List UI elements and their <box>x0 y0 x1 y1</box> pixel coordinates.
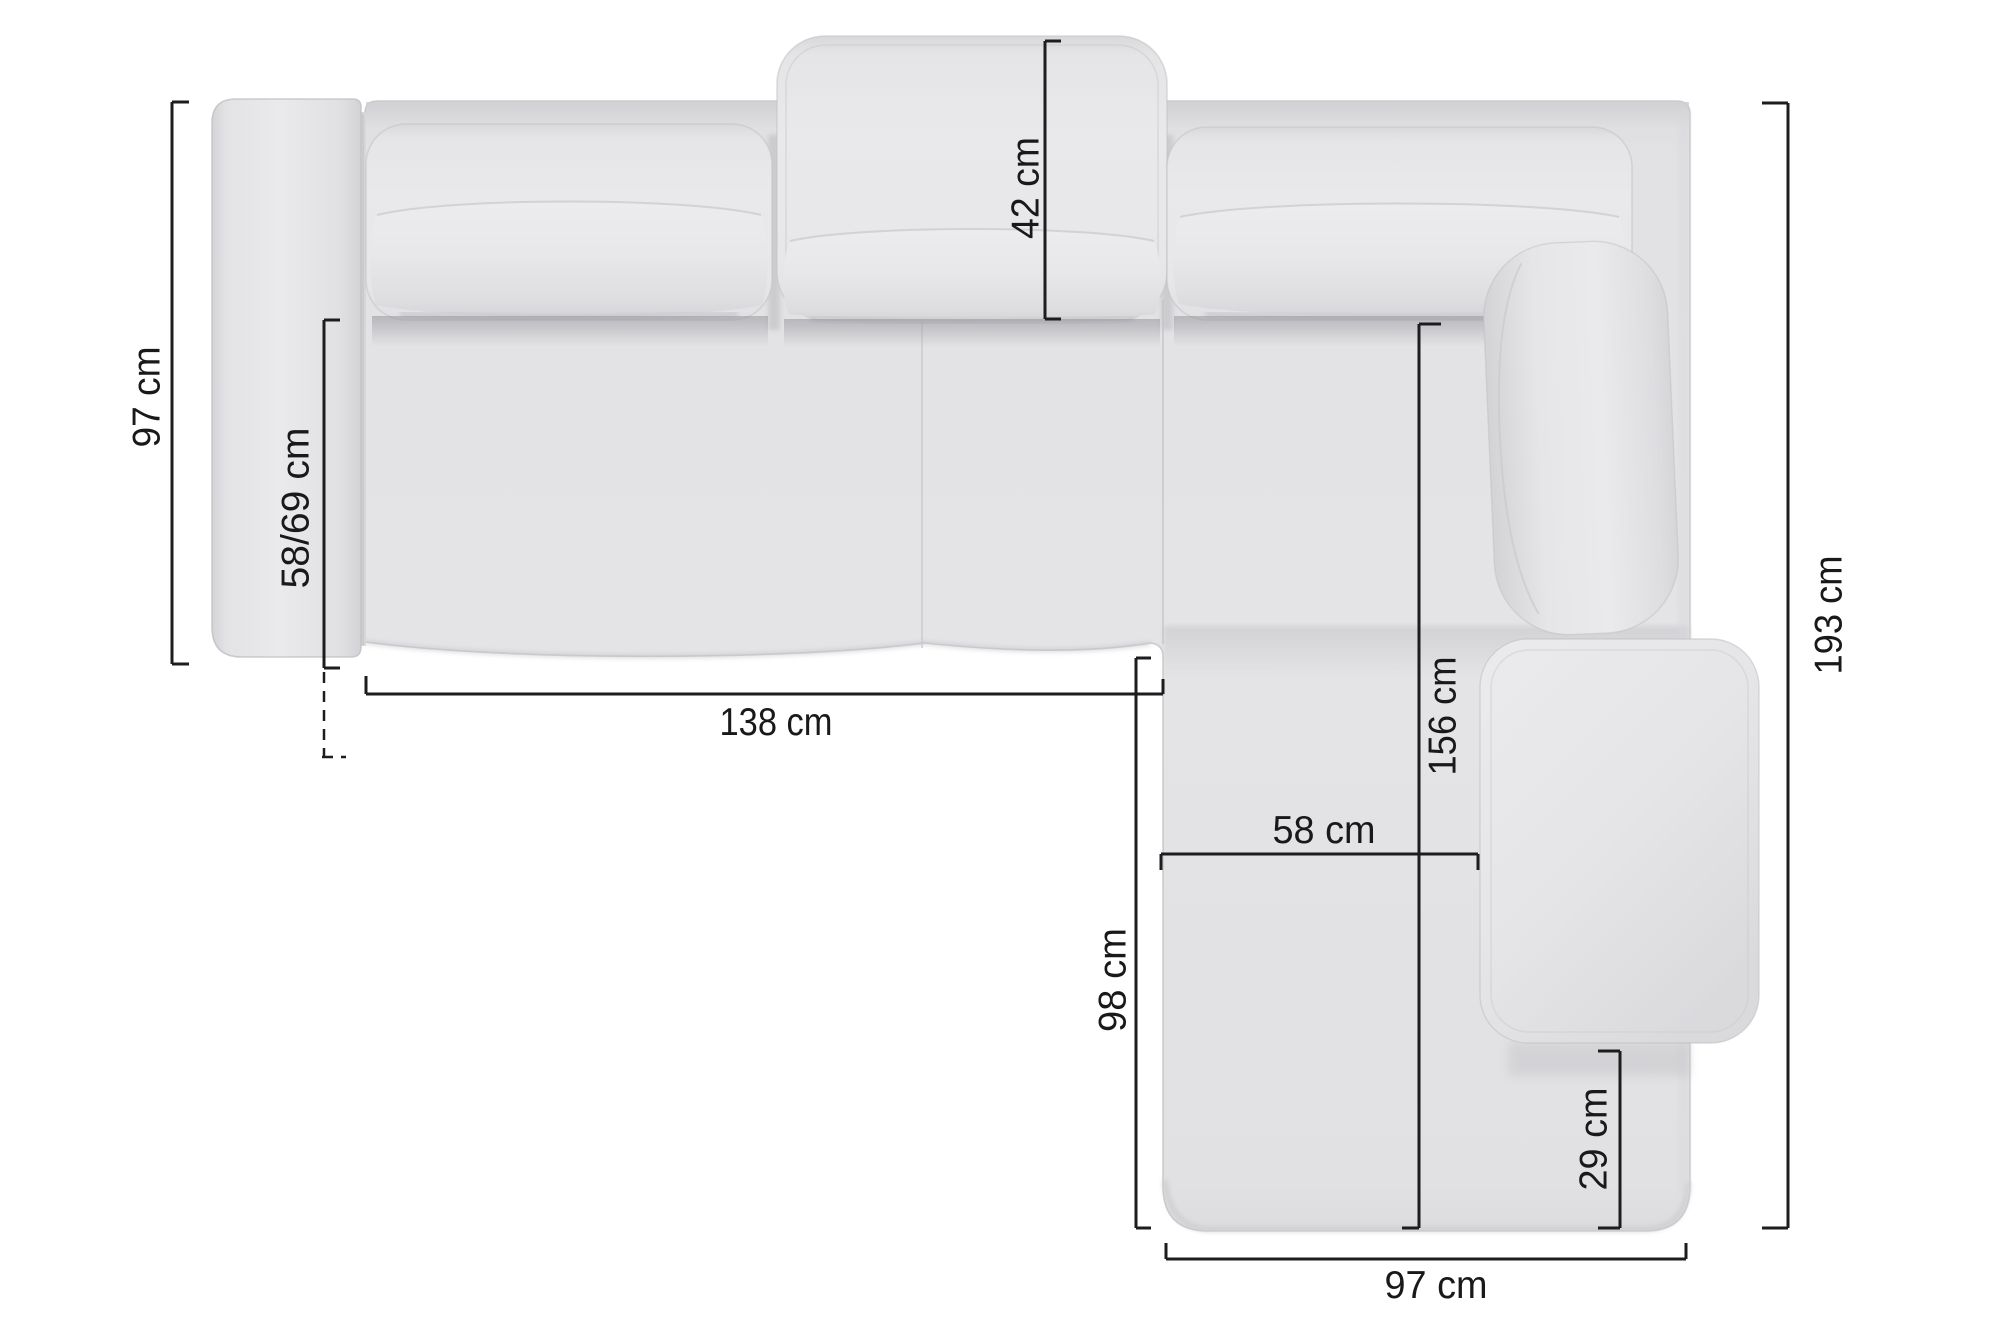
svg-text:42 cm: 42 cm <box>1005 137 1048 239</box>
svg-text:97 cm: 97 cm <box>1385 1264 1488 1307</box>
svg-text:138 cm: 138 cm <box>720 701 833 744</box>
svg-text:97 cm: 97 cm <box>126 347 169 448</box>
svg-text:58/69 cm: 58/69 cm <box>275 428 318 589</box>
svg-text:156 cm: 156 cm <box>1422 657 1465 776</box>
svg-text:98 cm: 98 cm <box>1092 928 1135 1032</box>
svg-text:58 cm: 58 cm <box>1273 809 1376 852</box>
svg-text:29 cm: 29 cm <box>1573 1088 1616 1191</box>
svg-text:193 cm: 193 cm <box>1808 556 1851 675</box>
